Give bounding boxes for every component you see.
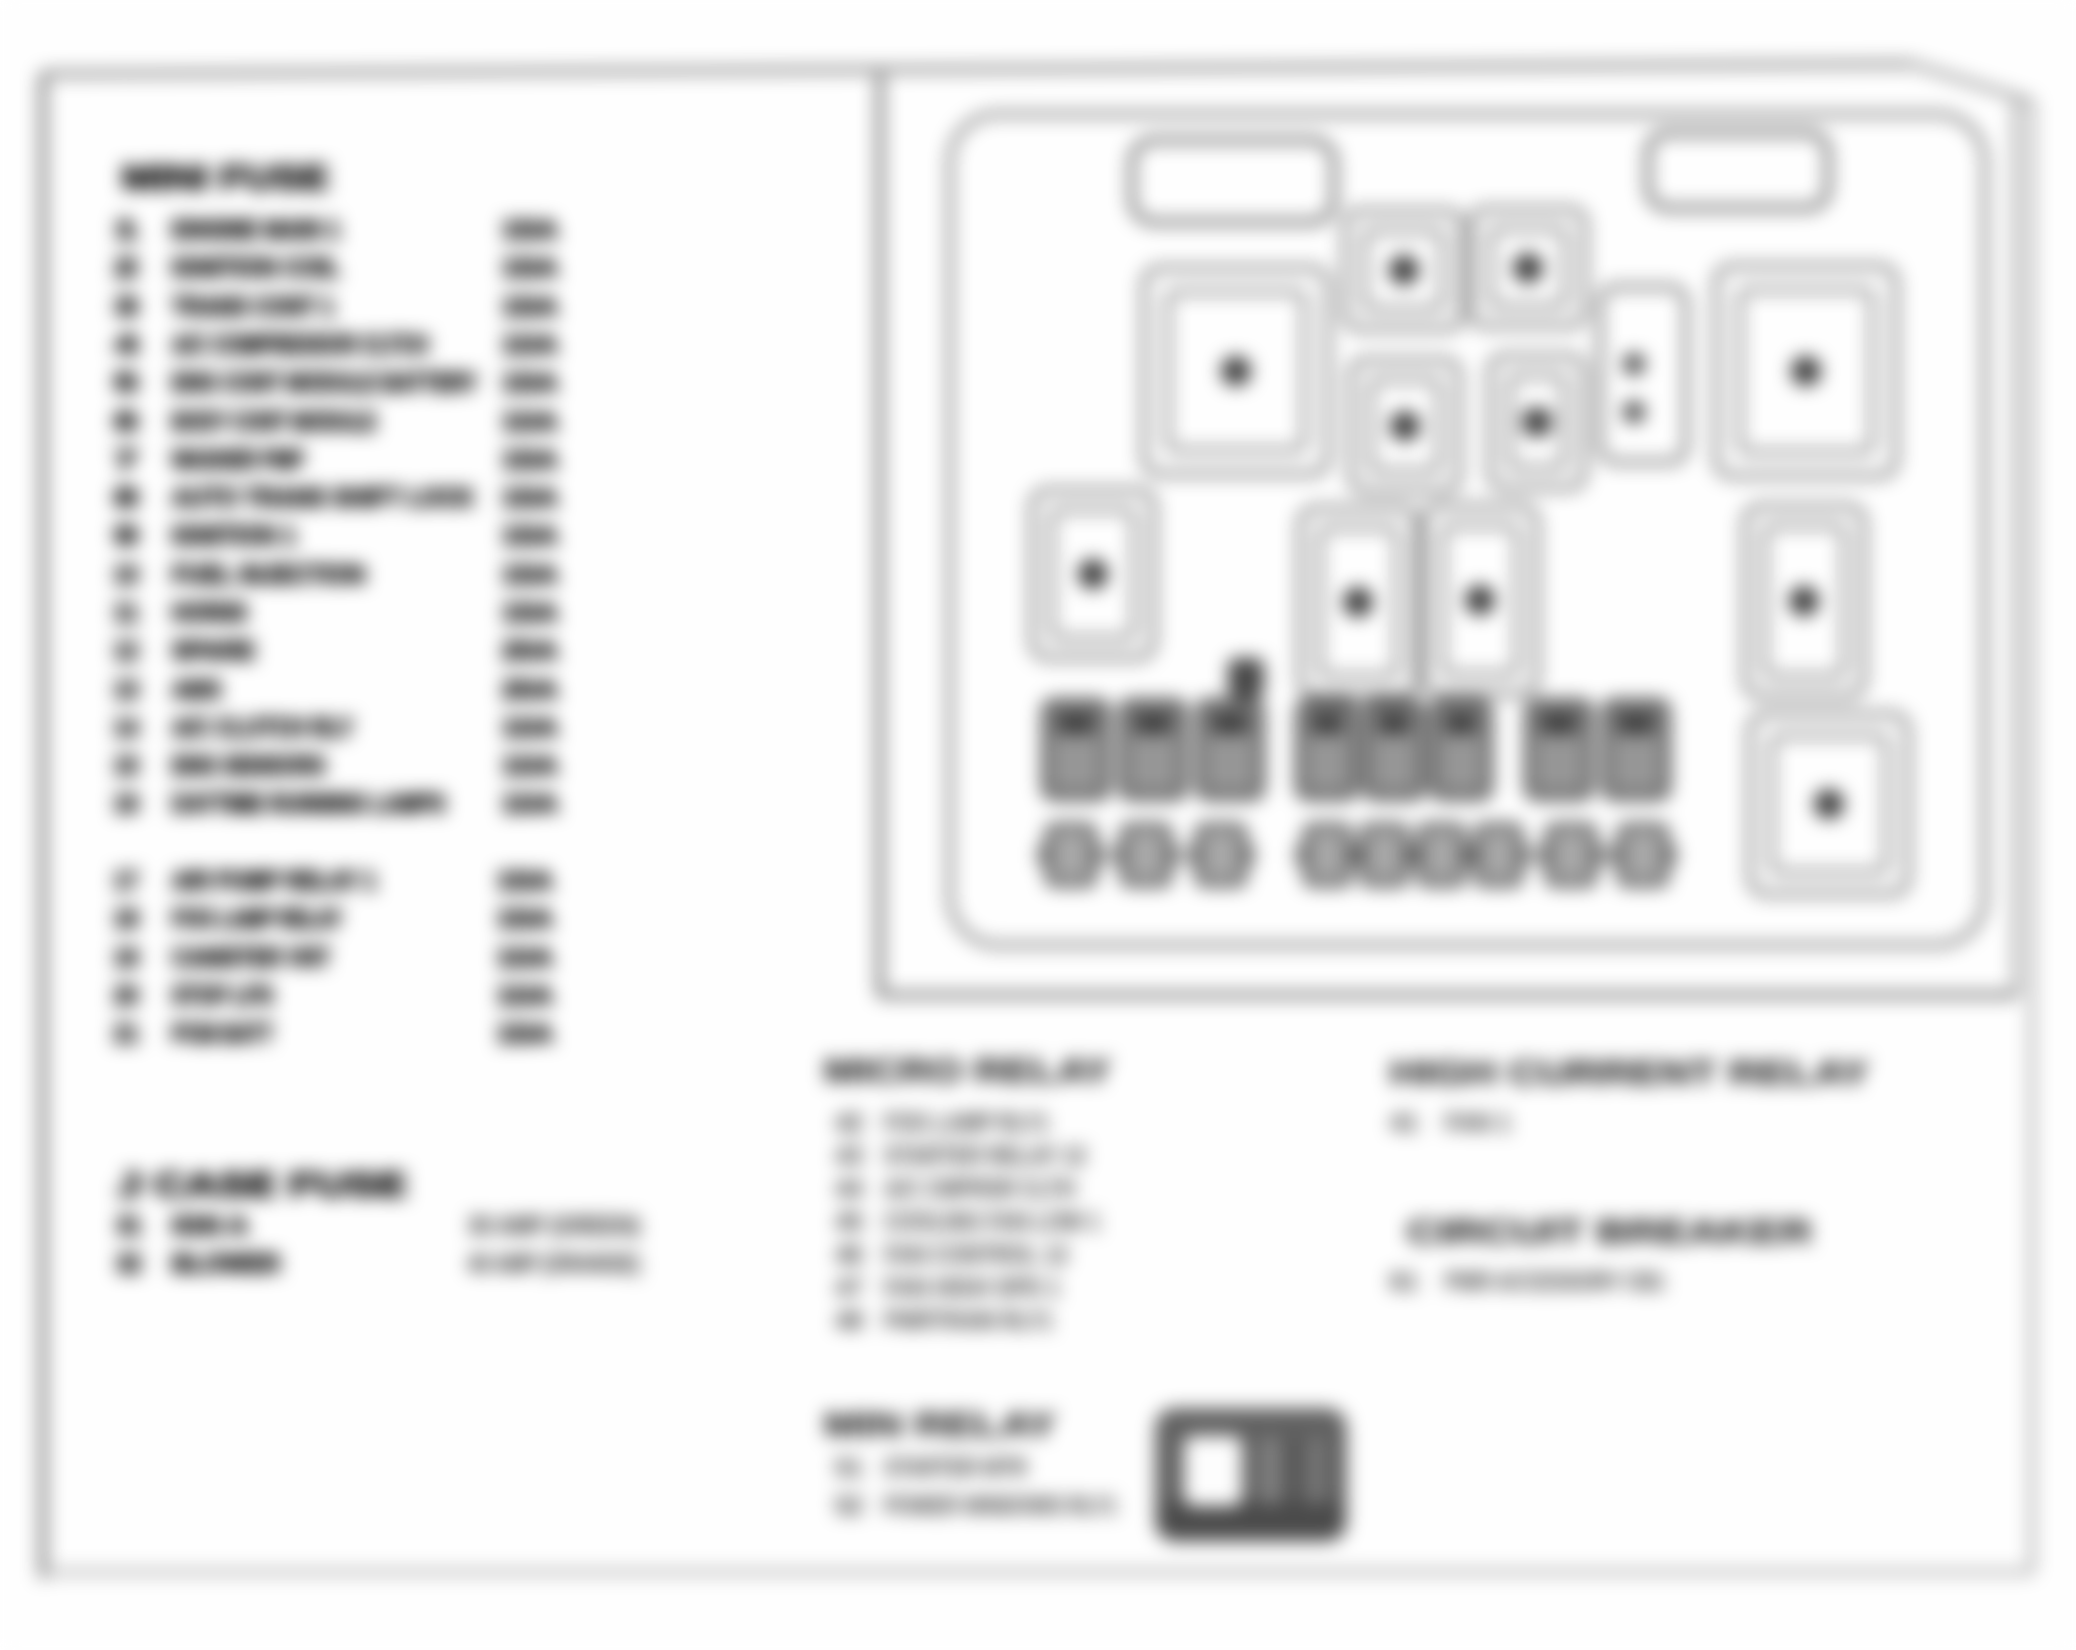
svg-text:44: 44 — [835, 1175, 863, 1203]
svg-text:MICRO RELAY: MICRO RELAY — [824, 1052, 1111, 1089]
svg-text:52: 52 — [835, 1492, 863, 1520]
svg-text:20: 20 — [114, 982, 138, 1010]
svg-text:16: 16 — [114, 790, 138, 818]
svg-text:13: 13 — [114, 676, 138, 704]
svg-text:15A: 15A — [502, 254, 558, 282]
svg-text:15A: 15A — [502, 369, 558, 397]
svg-text:DAYTIME RUNNING LAMPS: DAYTIME RUNNING LAMPS — [172, 790, 445, 818]
svg-text:15A: 15A — [502, 446, 558, 474]
svg-text:5: 5 — [114, 369, 138, 397]
svg-text:10A: 10A — [502, 408, 558, 436]
svg-text:A/C COMPRESSOR CLTCH: A/C COMPRESSOR CLTCH — [172, 331, 428, 359]
svg-text:30 AMP (GREEN): 30 AMP (GREEN) — [468, 1212, 640, 1240]
svg-text:IGN A: IGN A — [172, 1212, 248, 1240]
svg-text:PWRTRAIN RLY1: PWRTRAIN RLY1 — [884, 1307, 1053, 1335]
svg-text:PWR ACCESSORY CB1: PWR ACCESSORY CB1 — [1445, 1268, 1665, 1296]
svg-text:15A: 15A — [497, 905, 553, 933]
svg-text:10A: 10A — [502, 752, 558, 780]
svg-text:15A: 15A — [497, 867, 553, 895]
svg-text:47: 47 — [835, 1274, 863, 1302]
svg-text:18: 18 — [114, 905, 138, 933]
svg-text:21: 21 — [114, 1020, 138, 1048]
svg-text:MINI FUSE: MINI FUSE — [122, 159, 329, 196]
svg-text:41: 41 — [1390, 1109, 1418, 1137]
svg-text:SPARE: SPARE — [172, 637, 255, 665]
svg-text:POWER WINDOWS RLY1: POWER WINDOWS RLY1 — [884, 1492, 1117, 1520]
svg-text:HORNS: HORNS — [172, 599, 247, 627]
svg-text:PCM BATT: PCM BATT — [172, 1020, 273, 1048]
svg-text:ABS: ABS — [172, 676, 221, 704]
svg-text:HIGH CURRENT RELAY: HIGH CURRENT RELAY — [1390, 1054, 1869, 1091]
svg-text:FAN HIGH SPD 1: FAN HIGH SPD 1 — [884, 1274, 1060, 1302]
svg-text:10A: 10A — [502, 331, 558, 359]
svg-text:CIRCUIT BREAKER: CIRCUIT BREAKER — [1407, 1213, 1812, 1250]
svg-text:20A: 20A — [502, 637, 558, 665]
svg-text:7: 7 — [114, 446, 138, 474]
svg-text:1: 1 — [114, 216, 138, 244]
svg-text:ENG CONT MODULE BATTERY: ENG CONT MODULE BATTERY — [172, 369, 477, 397]
svg-text:BODY CONT MODULE: BODY CONT MODULE — [172, 408, 376, 436]
svg-text:STARTER MTR: STARTER MTR — [884, 1454, 1027, 1482]
svg-text:31: 31 — [117, 1212, 141, 1240]
svg-text:12: 12 — [114, 637, 138, 665]
svg-text:40 AMP (ORANGE): 40 AMP (ORANGE) — [468, 1250, 640, 1278]
svg-text:3: 3 — [114, 293, 138, 321]
svg-text:14: 14 — [114, 714, 138, 742]
svg-text:46: 46 — [835, 1241, 863, 1269]
svg-text:15A: 15A — [502, 484, 558, 512]
svg-text:STARTER RELAY 12: STARTER RELAY 12 — [884, 1142, 1086, 1170]
svg-text:8: 8 — [114, 484, 138, 512]
svg-text:ENGINE MAIN 1: ENGINE MAIN 1 — [172, 216, 340, 244]
svg-text:10: 10 — [114, 561, 138, 589]
svg-text:BLOWER: BLOWER — [172, 1250, 280, 1278]
svg-text:17: 17 — [114, 867, 138, 895]
svg-text:15A: 15A — [502, 561, 558, 589]
svg-text:15A: 15A — [502, 599, 558, 627]
svg-text:61: 61 — [1390, 1268, 1418, 1296]
svg-text:J CASE FUSE: J CASE FUSE — [117, 1166, 407, 1203]
svg-text:AUTO TRANS SHIFT LOCK: AUTO TRANS SHIFT LOCK — [172, 484, 474, 512]
svg-text:15A: 15A — [502, 216, 558, 244]
svg-text:A/C CMPRSR CLTH: A/C CMPRSR CLTH — [884, 1175, 1075, 1203]
svg-text:45: 45 — [835, 1208, 863, 1236]
svg-text:42: 42 — [835, 1109, 863, 1137]
svg-text:IGNITION COIL: IGNITION COIL — [172, 254, 340, 282]
svg-text:A/C CLUTCH RLY: A/C CLUTCH RLY — [172, 714, 353, 742]
svg-text:15A: 15A — [502, 522, 558, 550]
svg-text:10A: 10A — [502, 714, 558, 742]
svg-text:4: 4 — [114, 331, 138, 359]
svg-text:MIN RELAY: MIN RELAY — [824, 1406, 1056, 1443]
svg-text:43: 43 — [835, 1142, 863, 1170]
svg-text:20A: 20A — [502, 676, 558, 704]
svg-text:FOG LAMP RLY1: FOG LAMP RLY1 — [884, 1109, 1049, 1137]
svg-text:ENG SENSORS: ENG SENSORS — [172, 752, 325, 780]
svg-text:WASHER PMP: WASHER PMP — [172, 446, 304, 474]
svg-text:6: 6 — [114, 408, 138, 436]
svg-text:FUEL INJECTION: FUEL INJECTION — [172, 561, 365, 589]
svg-text:48: 48 — [835, 1307, 863, 1335]
svg-text:15: 15 — [114, 752, 138, 780]
svg-text:FOG LAMP RELAY: FOG LAMP RELAY — [172, 905, 342, 933]
svg-text:CANISTER VNT: CANISTER VNT — [172, 944, 330, 972]
svg-text:FAN 1: FAN 1 — [1445, 1109, 1511, 1137]
svg-text:AIR PUMP RELAY 1: AIR PUMP RELAY 1 — [172, 867, 376, 895]
svg-text:51: 51 — [835, 1454, 863, 1482]
svg-text:11: 11 — [114, 599, 138, 627]
svg-text:FAN CONTROL 12: FAN CONTROL 12 — [884, 1241, 1068, 1269]
svg-text:10A: 10A — [497, 944, 553, 972]
svg-text:IGNITION 1: IGNITION 1 — [172, 522, 296, 550]
svg-text:10A: 10A — [497, 982, 553, 1010]
svg-text:TRANS CONT 1: TRANS CONT 1 — [172, 293, 334, 321]
svg-text:32: 32 — [117, 1250, 141, 1278]
svg-text:9: 9 — [114, 522, 138, 550]
svg-text:19: 19 — [114, 944, 138, 972]
svg-text:COOLING FAN LOW 1: COOLING FAN LOW 1 — [884, 1208, 1100, 1236]
svg-text:15A: 15A — [502, 293, 558, 321]
svg-text:STOP LPS: STOP LPS — [172, 982, 273, 1010]
svg-text:10A: 10A — [502, 790, 558, 818]
svg-text:15A: 15A — [497, 1020, 553, 1048]
svg-text:2: 2 — [114, 254, 138, 282]
